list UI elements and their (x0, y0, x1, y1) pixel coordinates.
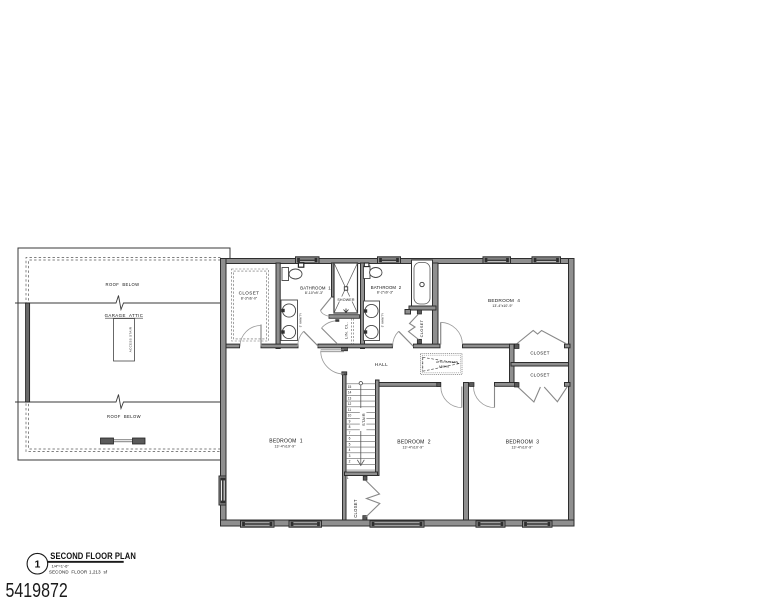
svg-text:14: 14 (348, 391, 352, 395)
svg-text:BATHROOM 1: BATHROOM 1 (300, 285, 331, 290)
svg-text:8: 8 (349, 425, 351, 429)
svg-text:13’-4”x10’-9”: 13’-4”x10’-9” (492, 304, 512, 308)
svg-text:1: 1 (347, 476, 349, 480)
svg-text:7: 7 (349, 431, 351, 435)
svg-text:ABOVE: ABOVE (439, 364, 449, 368)
svg-text:5’ VANITY: 5’ VANITY (381, 313, 385, 328)
svg-text:13’-4”x10’-9”: 13’-4”x10’-9” (512, 446, 534, 450)
svg-text:5’ VANITY: 5’ VANITY (299, 313, 303, 328)
svg-text:BEDROOM 3: BEDROOM 3 (506, 439, 539, 445)
svg-text:5419872: 5419872 (6, 579, 68, 600)
svg-text:CLOSET: CLOSET (419, 319, 424, 337)
svg-text:HALL: HALL (375, 362, 389, 367)
svg-text:4: 4 (349, 448, 351, 452)
svg-text:8’-3”x6’-0”: 8’-3”x6’-0” (241, 296, 257, 300)
svg-text:BATHROOM 2: BATHROOM 2 (371, 285, 402, 290)
svg-text:SHOWER: SHOWER (337, 298, 355, 302)
svg-text:11: 11 (348, 408, 352, 412)
svg-text:CLOSET: CLOSET (530, 350, 549, 355)
svg-text:SECOND FLOOR: SECOND FLOOR (49, 569, 87, 574)
svg-text:CLOSET: CLOSET (353, 499, 358, 518)
svg-text:8’-2”x9’-3”: 8’-2”x9’-3” (377, 291, 393, 295)
svg-text:1: 1 (34, 559, 40, 571)
svg-text:CLOSET: CLOSET (239, 291, 260, 296)
svg-text:10: 10 (348, 414, 352, 418)
svg-text:BEDROOM 2: BEDROOM 2 (397, 439, 430, 445)
svg-text:13: 13 (348, 396, 352, 400)
svg-text:13’-4”x10’-9”: 13’-4”x10’-9” (403, 446, 425, 450)
svg-text:5: 5 (349, 442, 351, 446)
svg-text:1/4”=1’-6”: 1/4”=1’-6” (52, 564, 70, 569)
svg-text:3: 3 (349, 454, 351, 458)
svg-text:LIN. CL.: LIN. CL. (344, 322, 349, 339)
svg-text:ROOF BELOW: ROOF BELOW (106, 282, 140, 287)
svg-text:15: 15 (348, 385, 352, 389)
svg-text:GARAGE ATTIC: GARAGE ATTIC (105, 313, 144, 318)
svg-text:ACCESS STAIR: ACCESS STAIR (129, 326, 133, 352)
svg-text:SECOND FLOOR PLAN: SECOND FLOOR PLAN (50, 550, 136, 561)
svg-text:6: 6 (349, 437, 351, 441)
svg-text:8’-10”x9’-3”: 8’-10”x9’-3” (305, 291, 323, 295)
svg-text:12: 12 (348, 402, 352, 406)
svg-text:STAIR: STAIR (361, 413, 366, 426)
svg-text:CLOSET: CLOSET (530, 372, 549, 377)
svg-text:ROOF BELOW: ROOF BELOW (107, 414, 141, 419)
svg-text:13’-4”x19’-9”: 13’-4”x19’-9” (275, 445, 297, 449)
svg-text:2: 2 (349, 460, 351, 464)
svg-text:1,213 sf: 1,213 sf (89, 569, 108, 574)
svg-text:9: 9 (349, 419, 351, 423)
